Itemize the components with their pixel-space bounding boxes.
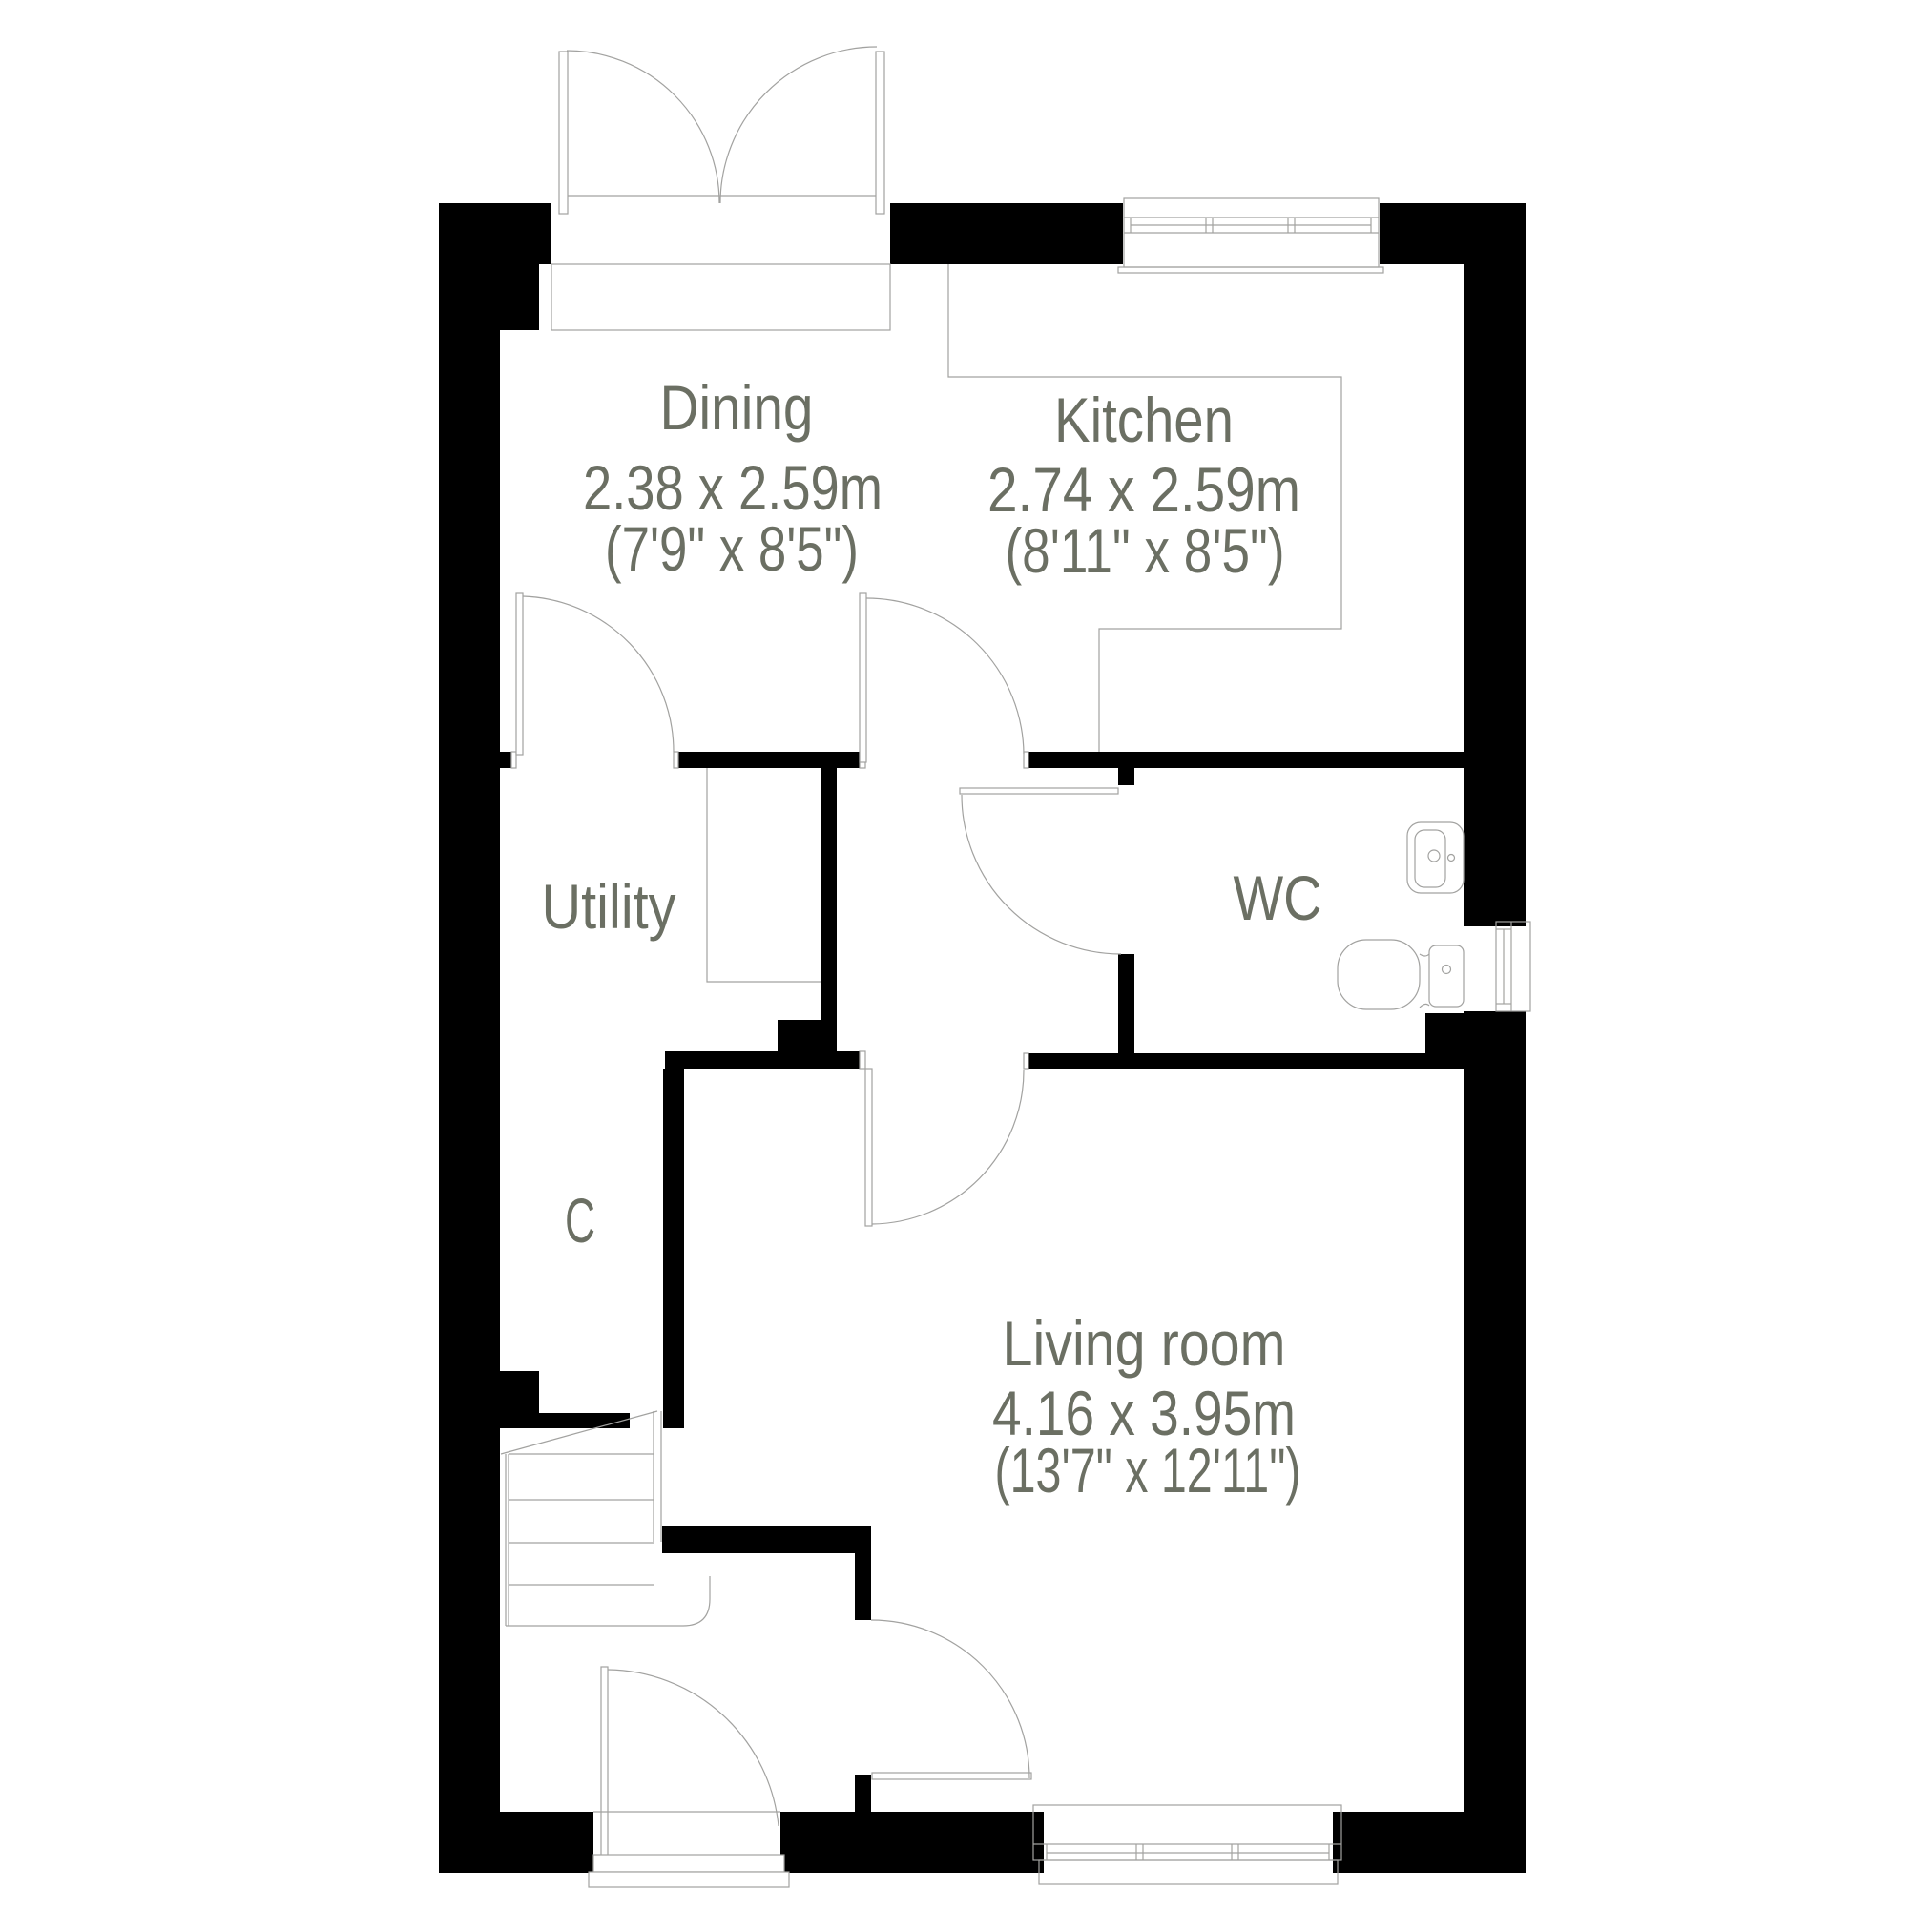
- svg-text:WC: WC: [1234, 862, 1322, 933]
- svg-text:Kitchen: Kitchen: [1054, 384, 1234, 455]
- svg-text:Living room: Living room: [1003, 1308, 1286, 1379]
- svg-text:(7'9" x 8'5"): (7'9" x 8'5"): [605, 513, 859, 584]
- svg-text:(13'7" x 12'11"): (13'7" x 12'11"): [995, 1435, 1301, 1506]
- svg-text:Utility: Utility: [542, 871, 676, 942]
- svg-text:Dining: Dining: [660, 372, 814, 443]
- svg-text:C: C: [565, 1185, 595, 1256]
- svg-text:(8'11" x 8'5"): (8'11" x 8'5"): [1006, 515, 1285, 586]
- svg-text:2.38 x 2.59m: 2.38 x 2.59m: [583, 452, 883, 523]
- svg-text:2.74 x 2.59m: 2.74 x 2.59m: [987, 454, 1300, 525]
